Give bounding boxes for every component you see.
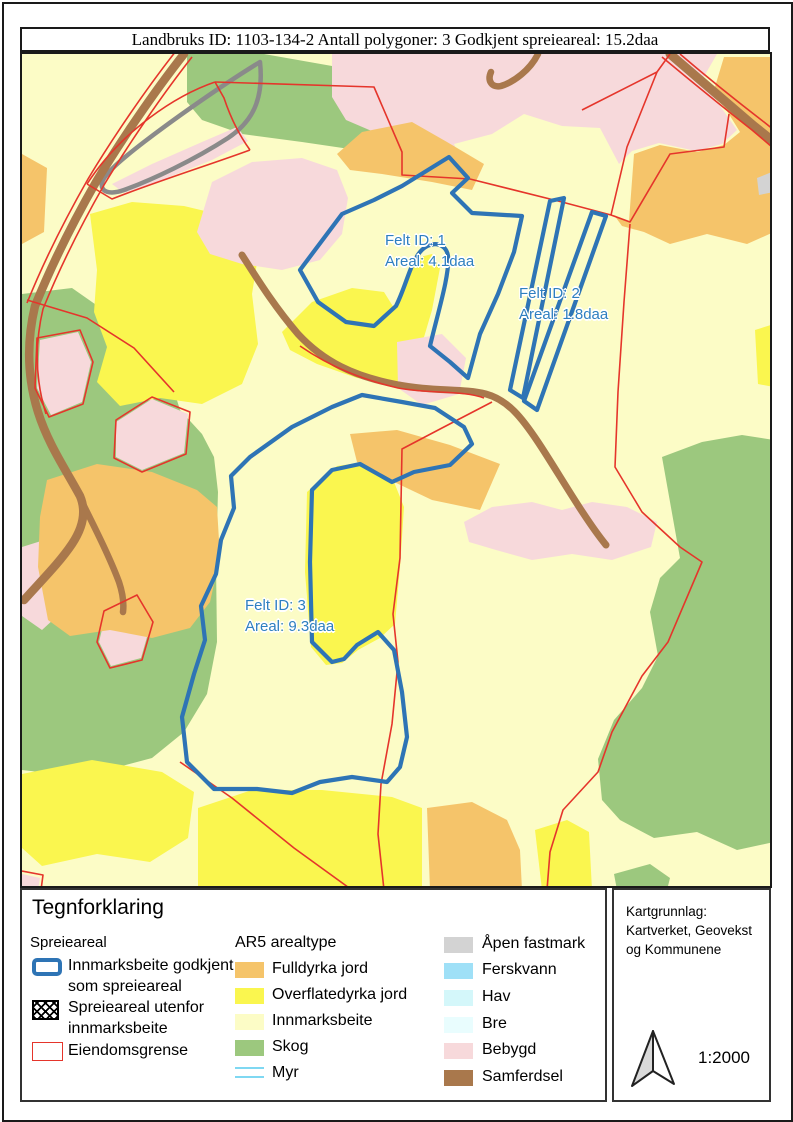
legend-item-utenfor-line2: innmarksbeite [68,1020,168,1038]
legend-item-samferdsel: Samferdsel [482,1068,563,1086]
swatch-bebygd [444,1043,473,1059]
legend-item-godkjent-line2: som spreieareal [68,978,182,996]
info-box: Kartgrunnlag: Kartverket, Geovekst og Ko… [612,888,771,1102]
legend-item-myr: Myr [272,1064,299,1082]
swatch-apen-fastmark [444,937,473,953]
map-title-bar: Landbruks ID: 1103-134-2 Antall polygone… [20,27,770,52]
swatch-innmarksbeite [235,1014,264,1030]
felt-2-label: Felt ID: 2 Areal: 1.8daa [519,283,608,325]
felt-3-label-id: Felt ID: 3 [245,595,334,616]
swatch-bre [444,1017,473,1033]
attribution-line3: og Kommunene [626,940,752,959]
swatch-eiendomsgrense [32,1042,63,1061]
scale-label: 1:2000 [698,1048,750,1068]
felt-2-label-id: Felt ID: 2 [519,283,608,304]
felt-2-label-areal: Areal: 1.8daa [519,304,608,325]
legend-item-apen-fastmark: Åpen fastmark [482,935,585,953]
legend-item-eiendomsgrense: Eiendomsgrense [68,1042,188,1060]
felt-1-label-areal: Areal: 4.1daa [385,251,474,272]
felt-3-label: Felt ID: 3 Areal: 9.3daa [245,595,334,637]
swatch-fulldyrka [235,962,264,978]
swatch-overflatedyrka [235,988,264,1004]
swatch-samferdsel [444,1070,473,1086]
legend-item-bre: Bre [482,1015,507,1033]
map-title: Landbruks ID: 1103-134-2 Antall polygone… [132,30,659,50]
legend-item-ferskvann: Ferskvann [482,961,557,979]
legend-item-overflatedyrka: Overflatedyrka jord [272,986,407,1004]
legend-spreieareal-heading: Spreieareal [30,934,107,951]
map-canvas: Felt ID: 1 Areal: 4.1daa Felt ID: 2 Area… [20,52,772,888]
legend-item-skog: Skog [272,1038,308,1056]
legend-item-hav: Hav [482,988,510,1006]
legend-title: Tegnforklaring [32,896,164,920]
felt-3-label-areal: Areal: 9.3daa [245,616,334,637]
attribution-line1: Kartgrunnlag: [626,902,752,921]
report-page: Landbruks ID: 1103-134-2 Antall polygone… [0,0,793,1122]
attribution: Kartgrunnlag: Kartverket, Geovekst og Ko… [626,902,752,959]
attribution-line2: Kartverket, Geovekst [626,921,752,940]
legend-item-fulldyrka: Fulldyrka jord [272,960,368,978]
swatch-skog [235,1040,264,1056]
legend-item-innmarksbeite: Innmarksbeite [272,1012,373,1030]
legend-item-godkjent-line1: Innmarksbeite godkjent [68,957,233,975]
felt-1-label: Felt ID: 1 Areal: 4.1daa [385,230,474,272]
legend-item-utenfor-line1: Spreieareal utenfor [68,999,204,1017]
swatch-myr [235,1067,264,1078]
swatch-hav [444,990,473,1006]
legend-item-bebygd: Bebygd [482,1041,536,1059]
felt-1-label-id: Felt ID: 1 [385,230,474,251]
swatch-ferskvann [444,963,473,979]
map-svg [20,52,772,888]
swatch-spreieareal-utenfor [32,1000,59,1020]
legend: Tegnforklaring Spreieareal Innmarksbeite… [20,888,607,1102]
legend-ar5-heading: AR5 arealtype [235,934,336,952]
swatch-innmarksbeite-godkjent [32,958,62,976]
north-arrow-icon [628,1028,680,1090]
